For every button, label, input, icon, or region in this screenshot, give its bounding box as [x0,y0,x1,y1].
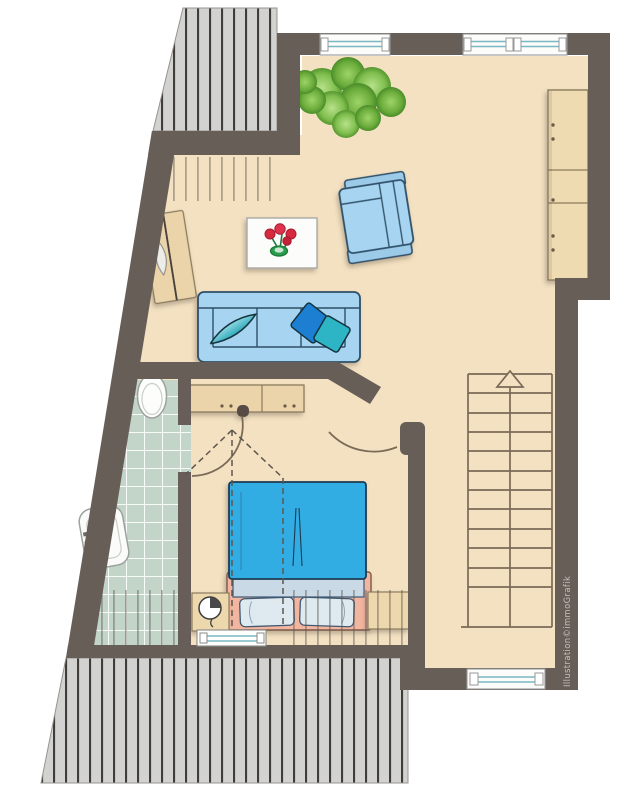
bedroom-sideboard [187,385,304,417]
tall-cabinet [548,90,588,280]
wall-bathroom-right-upper [178,362,191,425]
floor-plan-page: Illustration©immoGrafik [0,0,620,795]
bottom-window [467,669,545,689]
bed-duvet [229,482,366,579]
roof-slope-hatch-bedroom [283,590,411,646]
plant-leaf [355,105,381,131]
door-hinge-post [237,405,249,417]
roof-terrace-bottom [41,658,408,783]
wall-terrace-band [66,645,425,658]
bedroom-radiator-window [197,630,266,646]
wall-right-upper [588,33,610,300]
wall-bathroom-right-lower [178,472,191,646]
roof-slope-hatch-bathroom [92,590,191,646]
armchair [336,171,416,264]
top-window-right [463,34,567,55]
cabinet-body [548,90,588,280]
illustration-credit: Illustration©immoGrafik [562,576,572,687]
wall-bedroom-right [408,430,425,690]
wall-top-left-vertical [277,33,300,155]
coffee-table-with-tulips [247,218,317,268]
three-seat-sofa [198,292,360,362]
plant-leaf [376,87,406,117]
top-window-left [320,34,390,55]
floor-plan-drawing: Illustration©immoGrafik [0,0,620,795]
nightstand-with-lamp [192,593,229,631]
roof-terrace-top-left [153,8,277,131]
